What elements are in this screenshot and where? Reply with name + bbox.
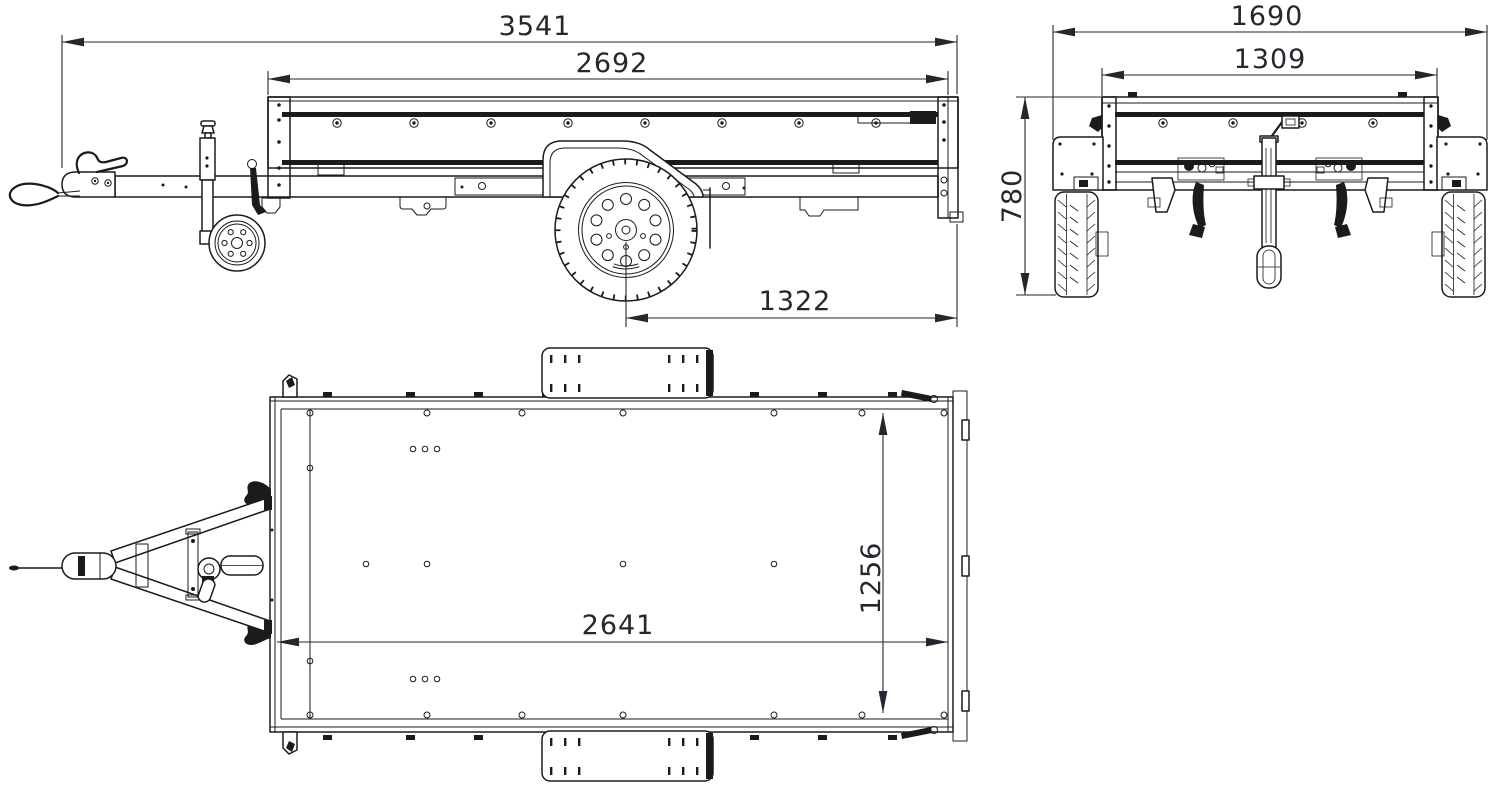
jockey-handle-top <box>198 579 215 602</box>
coupling <box>10 152 127 205</box>
upper-trim-band <box>282 112 938 117</box>
rear-right-wheel <box>1432 192 1485 297</box>
rear-view: 1690 1309 780 <box>997 1 1487 297</box>
top-mudguard-upper <box>542 348 713 398</box>
dim-inner-length: 2641 <box>277 610 948 646</box>
tailgate-hinge-bottom <box>962 691 969 711</box>
dim-label-overall-height: 780 <box>997 169 1028 224</box>
tailgate-latch-top <box>901 390 932 402</box>
dim-overall-length: 3541 <box>62 11 957 168</box>
chassis <box>115 176 938 216</box>
crank-handle <box>1282 116 1299 128</box>
dim-label-overall-width: 1690 <box>1231 1 1304 32</box>
top-mudguards <box>542 348 713 781</box>
jockey-post-rear <box>1262 138 1276 248</box>
underside-left-latch <box>1178 158 1224 238</box>
trailer-three-view-drawing: 3541 2692 1322 <box>0 0 1500 792</box>
left-wing-latch <box>1089 115 1102 132</box>
dim-label-box-width: 1309 <box>1234 44 1307 75</box>
technical-drawing-page: 3541 2692 1322 <box>0 0 1500 792</box>
aframe-upper-tube <box>111 497 270 563</box>
jockey-wheel-rear <box>1248 116 1299 288</box>
jockey-tyre <box>209 215 265 271</box>
safety-cable-loop <box>10 184 58 206</box>
dim-label-inner-width: 1256 <box>856 542 887 615</box>
tailgate-latch-bottom <box>901 727 932 739</box>
rear-left-post <box>1102 97 1116 190</box>
floor-rivets <box>307 410 947 718</box>
drawbar-top <box>9 496 272 634</box>
coupler-body <box>62 172 115 197</box>
top-mudguard-lower <box>542 731 713 781</box>
chassis-bracket-front <box>400 197 446 215</box>
tailgate-hinge-top <box>962 420 969 440</box>
dim-inner-width: 1256 <box>856 413 887 713</box>
jockey-inner-tube <box>202 180 213 236</box>
rear-right-post <box>1424 97 1438 190</box>
tailgate <box>901 390 969 741</box>
dim-label-inner-length: 2641 <box>582 610 655 641</box>
jockey-wheel-top <box>198 556 263 602</box>
right-wing-latch <box>1438 115 1451 132</box>
jockey-clamp <box>1254 176 1284 189</box>
rail-tabs <box>323 392 897 740</box>
breakaway-lever <box>248 160 267 216</box>
chassis-bracket-rear <box>800 197 858 216</box>
rear-trim-band-upper <box>1115 112 1424 117</box>
dim-box-width: 1309 <box>1102 44 1437 96</box>
rear-rivets <box>1159 119 1377 127</box>
dim-label-box-length: 2692 <box>576 48 649 79</box>
floor-holes <box>307 446 777 682</box>
rear-left-wheel <box>1055 192 1108 297</box>
dim-box-length: 2692 <box>268 48 948 95</box>
dim-label-axle-to-rear: 1322 <box>759 286 832 317</box>
coupler-handle <box>77 152 127 173</box>
underside-right-latch <box>1316 158 1362 238</box>
tailgate-hinge-mid <box>962 556 969 576</box>
top-view: 2641 1256 <box>9 348 969 781</box>
dim-label-overall-length: 3541 <box>499 11 572 42</box>
side-view: 3541 2692 1322 <box>10 11 963 327</box>
side-rivets <box>333 119 880 127</box>
coupler-top <box>9 553 116 579</box>
rear-post <box>938 97 963 222</box>
